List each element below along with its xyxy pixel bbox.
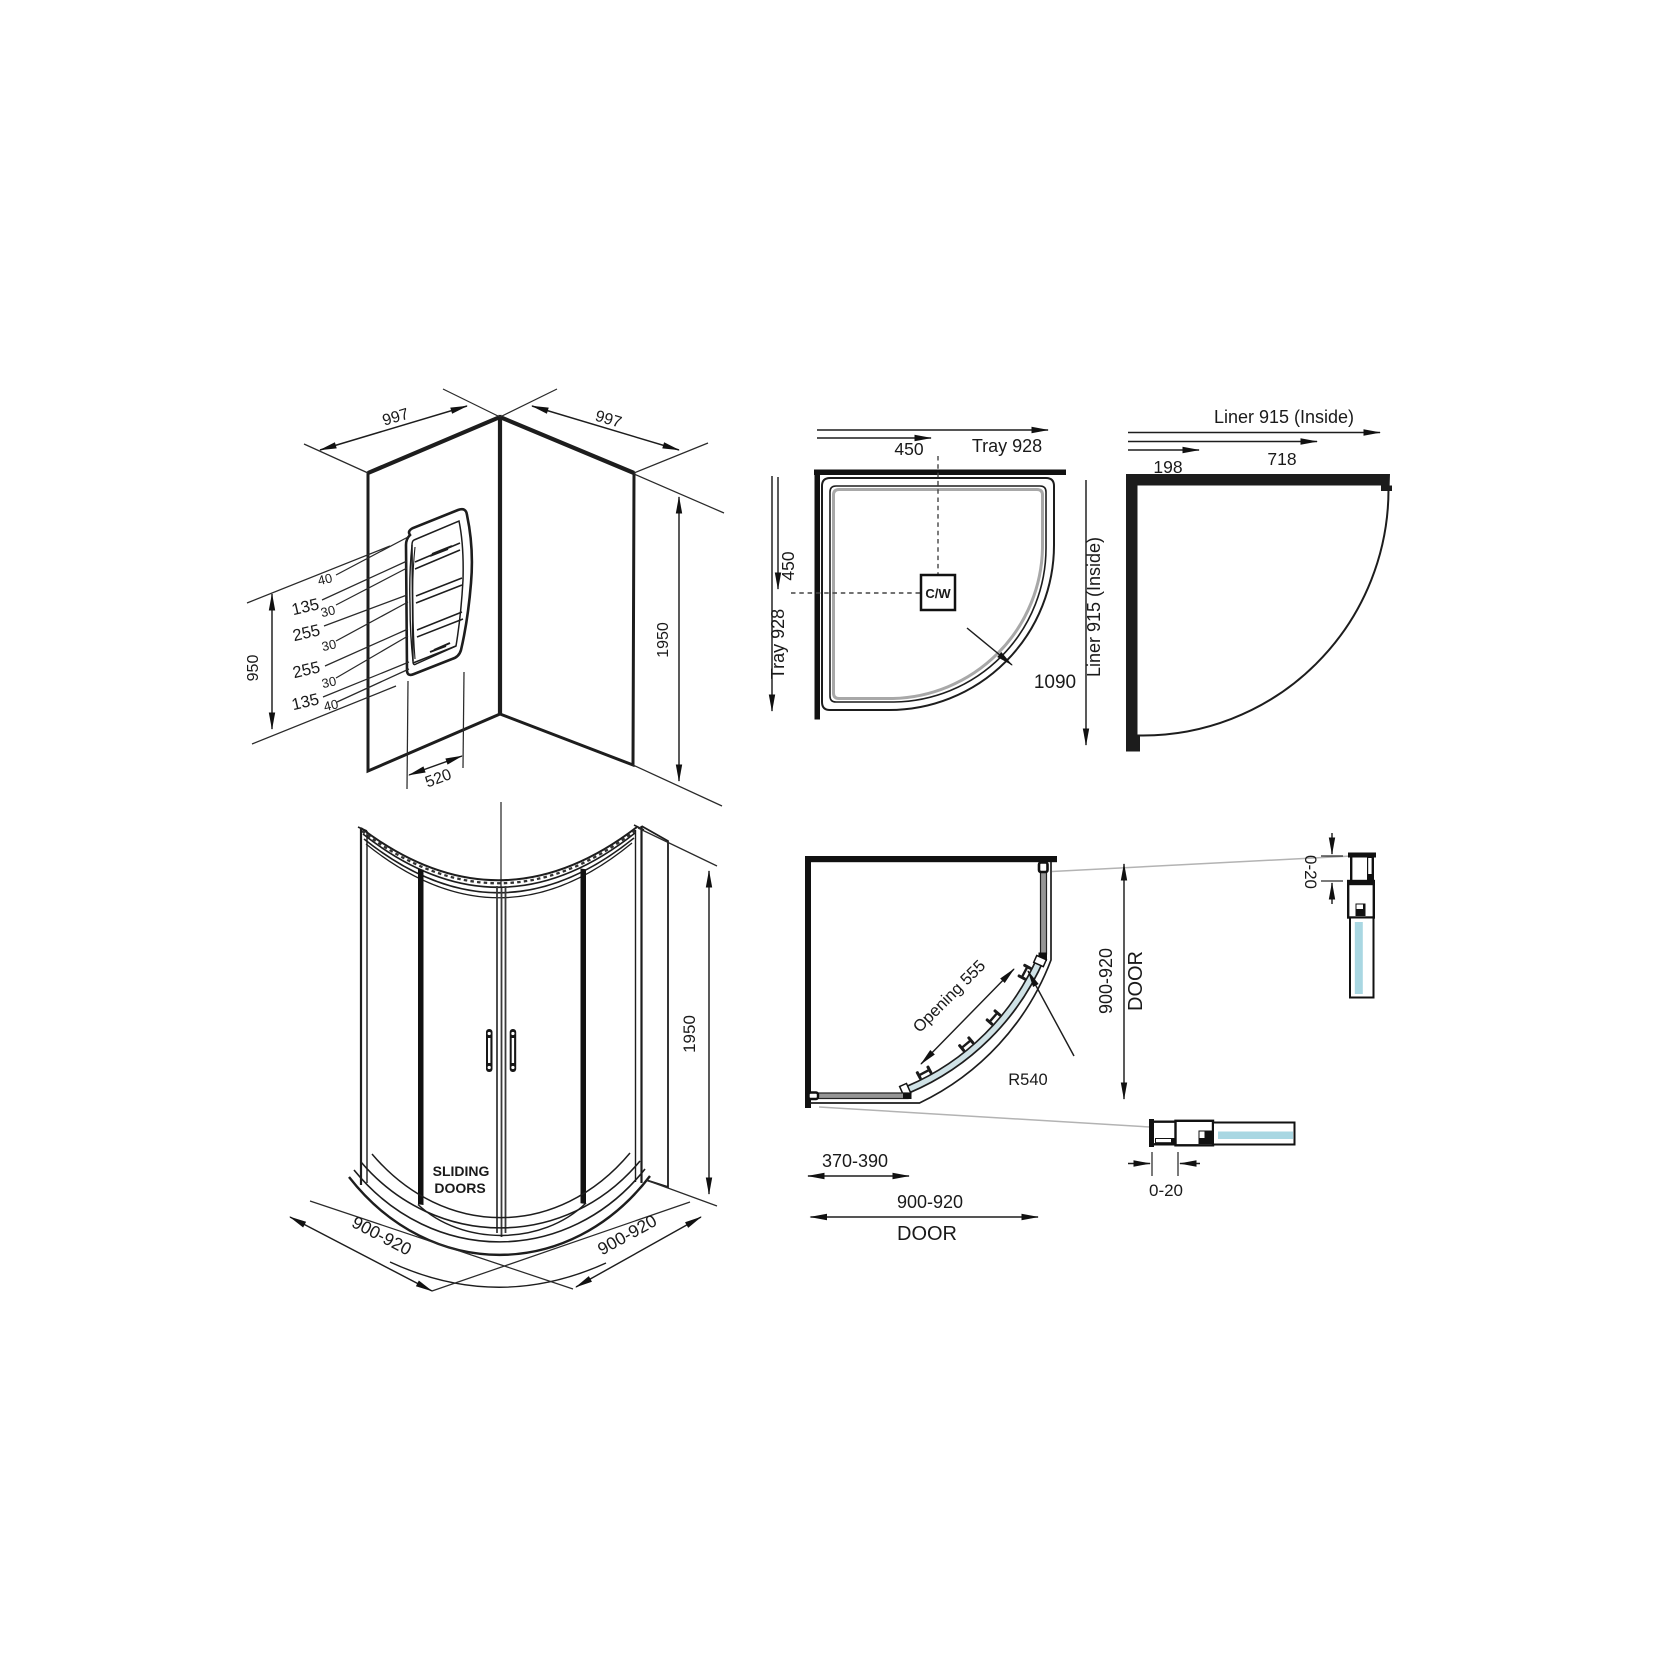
svg-text:1090: 1090 [1034, 672, 1076, 693]
svg-text:DOORS: DOORS [434, 1180, 485, 1196]
svg-text:370-390: 370-390 [822, 1151, 888, 1171]
svg-text:900-920: 900-920 [1096, 948, 1116, 1014]
svg-text:0-20: 0-20 [1301, 855, 1320, 889]
svg-text:900-920: 900-920 [897, 1192, 963, 1212]
svg-text:Tray 928: Tray 928 [972, 436, 1042, 456]
svg-text:C/W: C/W [925, 586, 951, 601]
svg-text:450: 450 [894, 439, 923, 459]
svg-text:Liner 915 (Inside): Liner 915 (Inside) [1084, 537, 1104, 677]
svg-text:DOOR: DOOR [1125, 951, 1147, 1011]
svg-text:Tray 928: Tray 928 [768, 609, 788, 679]
svg-text:0-20: 0-20 [1149, 1181, 1183, 1200]
svg-text:Liner 915 (Inside): Liner 915 (Inside) [1214, 407, 1354, 427]
svg-text:450: 450 [778, 551, 798, 580]
svg-text:1950: 1950 [655, 622, 672, 658]
svg-text:950: 950 [245, 655, 262, 682]
svg-text:R540: R540 [1008, 1071, 1047, 1089]
svg-text:718: 718 [1267, 449, 1296, 469]
svg-text:SLIDING: SLIDING [433, 1163, 490, 1179]
svg-text:1950: 1950 [680, 1015, 699, 1053]
svg-text:DOOR: DOOR [897, 1223, 957, 1245]
